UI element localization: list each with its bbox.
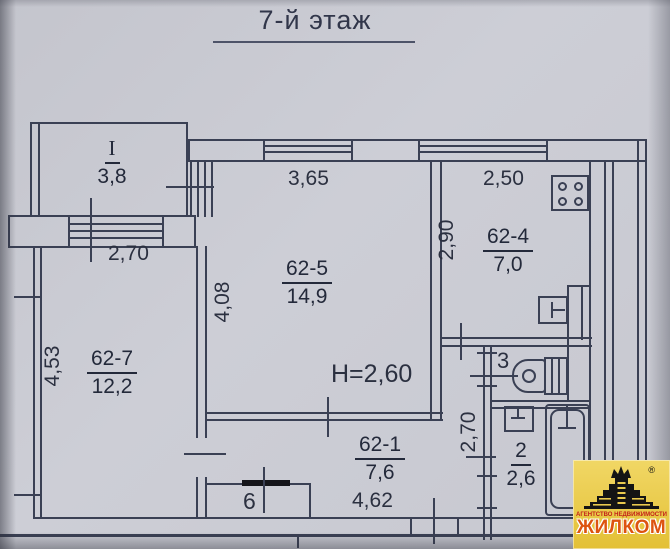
- room-label-kitchen: 62-4 7,0: [466, 224, 550, 277]
- dim-living-width: 3,65: [288, 167, 329, 191]
- bathtub-tap-icon: [566, 406, 568, 428]
- wall-segment: [188, 139, 190, 162]
- wall-segment: [442, 345, 592, 347]
- dimension-tick: [90, 198, 92, 262]
- zhilkom-building-icon: [573, 463, 670, 511]
- window-glazing: [68, 223, 164, 225]
- wall-segment: [457, 517, 459, 536]
- dim-hallway-length: 4,62: [352, 489, 393, 513]
- dim-bedroom-width: 2,70: [108, 242, 149, 266]
- balcony-wall: [30, 122, 32, 217]
- window-sill: [8, 246, 196, 248]
- wall-segment: [0, 534, 670, 537]
- wall-segment: [567, 285, 591, 287]
- wall-segment: [33, 517, 648, 519]
- window-glazing: [197, 161, 199, 217]
- photo-edge-shadow: [0, 0, 16, 549]
- wall-segment: [581, 285, 583, 340]
- agency-logo: ® АГЕНТСТВО НЕДВИЖИМОСТИ ЖИЛКОМ: [573, 460, 670, 549]
- room-label-bathroom: 2 2,6: [500, 438, 542, 491]
- door-jamb-tick: [477, 507, 497, 509]
- wall-segment: [440, 161, 442, 421]
- room-label-hallway: 62-1 7,6: [342, 432, 418, 485]
- door-jamb-tick: [477, 475, 497, 477]
- stove-icon: [551, 175, 589, 211]
- window-jamb: [546, 139, 548, 162]
- window-glazing: [190, 161, 192, 217]
- wall-segment: [205, 246, 207, 438]
- window-glazing: [211, 161, 213, 217]
- wall-segment: [309, 483, 311, 519]
- wall-segment: [442, 337, 592, 339]
- toilet-tank-icon: [551, 357, 553, 395]
- door-jamb-tick: [477, 352, 497, 354]
- logo-brand-text: ЖИЛКОМ: [577, 518, 666, 538]
- toilet-bowl-icon: [522, 369, 536, 383]
- window-glazing: [68, 237, 164, 239]
- dim-bedroom-depth: 4,53: [23, 353, 83, 379]
- window-jamb: [263, 139, 265, 162]
- dimension-tick: [470, 375, 518, 377]
- title-underline: [213, 41, 415, 43]
- window-glazing: [68, 230, 164, 232]
- room-label-toilet: 3: [497, 348, 509, 374]
- wall-segment: [207, 412, 443, 414]
- door-jamb-tick: [477, 385, 497, 387]
- wall-segment: [196, 246, 198, 438]
- wall-segment: [430, 161, 432, 421]
- room-label-closet: 6: [243, 488, 256, 515]
- window-jamb: [418, 139, 420, 162]
- kitchen-sink-icon: [552, 309, 565, 311]
- wall-segment: [188, 160, 646, 162]
- bath-sink-icon: [504, 406, 534, 432]
- dimension-tick: [433, 498, 435, 544]
- toilet-tank-icon: [558, 357, 560, 395]
- dim-ceiling-height: Н=2,60: [331, 360, 412, 389]
- floor-title: 7-й этаж: [215, 5, 415, 36]
- balcony-wall: [38, 122, 40, 217]
- door-opening-tick: [184, 453, 226, 455]
- window-glazing: [263, 145, 353, 147]
- wall-segment: [33, 246, 35, 519]
- door-opening-tick: [327, 397, 329, 437]
- window-glazing: [418, 151, 548, 153]
- dim-bathroom-depth: 2,70: [439, 419, 499, 445]
- window-glazing: [418, 145, 548, 147]
- window-glazing: [204, 161, 206, 217]
- stove-burner-icon: [558, 197, 567, 206]
- dimension-tick: [466, 456, 496, 458]
- wall-segment: [196, 477, 198, 519]
- stove-burner-icon: [574, 182, 583, 191]
- dimension-tick: [14, 494, 42, 496]
- dim-kitchen-depth: 2,90: [417, 227, 477, 253]
- door-opening-tick: [263, 467, 265, 513]
- wall-segment: [492, 400, 591, 402]
- stove-burner-icon: [558, 182, 567, 191]
- door-opening-tick: [460, 323, 462, 360]
- closet-door-icon: [242, 480, 290, 486]
- dimension-tick: [14, 296, 42, 298]
- registered-mark: ®: [648, 465, 655, 475]
- toilet-tank-icon: [544, 357, 568, 395]
- room-label-balcony: I 3,8: [80, 136, 144, 189]
- window-glazing: [263, 151, 353, 153]
- window-jamb: [351, 139, 353, 162]
- bath-sink-icon: [511, 417, 525, 419]
- bathtub-tap-icon: [558, 427, 576, 429]
- window-sill: [8, 215, 196, 217]
- window-sill: [8, 215, 10, 248]
- room-label-living: 62-5 14,9: [262, 256, 352, 309]
- stove-burner-icon: [574, 197, 583, 206]
- wall-segment: [207, 419, 443, 421]
- dimension-tick: [166, 186, 214, 188]
- balcony-wall: [30, 122, 188, 124]
- window-sill: [194, 215, 196, 248]
- wall-segment: [188, 139, 646, 141]
- wall-segment: [410, 517, 412, 536]
- dim-living-depth: 4,08: [193, 289, 253, 315]
- floor-plan: 7-й этаж: [0, 0, 670, 549]
- dim-kitchen-width: 2,50: [483, 167, 524, 191]
- balcony-wall: [186, 122, 188, 217]
- dimension-tick: [297, 534, 299, 548]
